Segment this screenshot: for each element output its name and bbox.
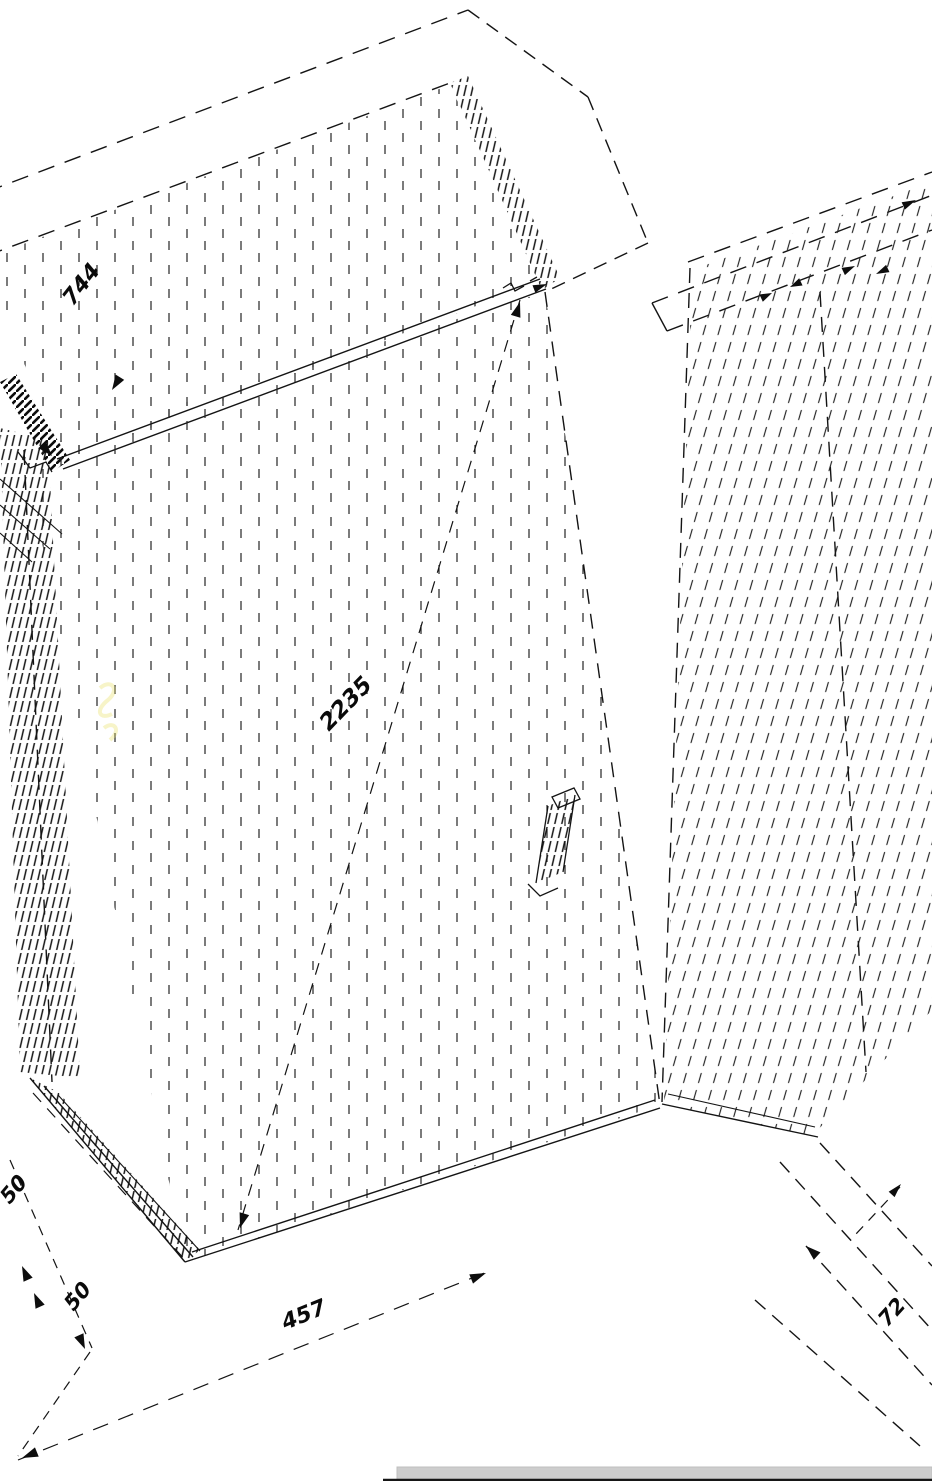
beam-left-cap (652, 303, 667, 331)
right-bottom-dash-1 (820, 1143, 932, 1266)
dim-line-50-tail (18, 1352, 90, 1456)
arrow-50-a (17, 1264, 32, 1282)
right-bottom-dash-3 (806, 1246, 932, 1385)
footer-strip (383, 1467, 932, 1480)
arrow-72-a (803, 1242, 821, 1259)
top-panel-edge-end-right (588, 97, 648, 243)
technical-drawing-canvas: 744 2235 457 50 50 72 (0, 0, 932, 1481)
dim-label-457: 457 (280, 1293, 327, 1336)
cad-viewport: 744 2235 457 50 50 72 (0, 0, 932, 1481)
side-panel-right (662, 182, 932, 1446)
right-bottom-dash-2 (780, 1162, 932, 1330)
arrow-457-right (469, 1268, 488, 1283)
dim-label-50-upper: 50 (0, 1169, 31, 1211)
dim-label-72: 72 (875, 1292, 909, 1334)
side-panel-left (0, 292, 660, 1262)
arrow-72-b (889, 1181, 904, 1197)
dim-label-50-lower: 50 (61, 1276, 95, 1318)
arrow-457-left (20, 1447, 39, 1462)
top-panel-edge-end-top (468, 10, 588, 97)
right-panel-face-hatching (664, 182, 932, 1136)
left-panel-face-hatching (24, 292, 660, 1262)
arrow-50-c (74, 1333, 89, 1351)
top-panel-edge-end-bottom (547, 243, 648, 291)
arrow-50-b (29, 1291, 44, 1309)
horizontal-scrollbar[interactable] (397, 1467, 932, 1479)
